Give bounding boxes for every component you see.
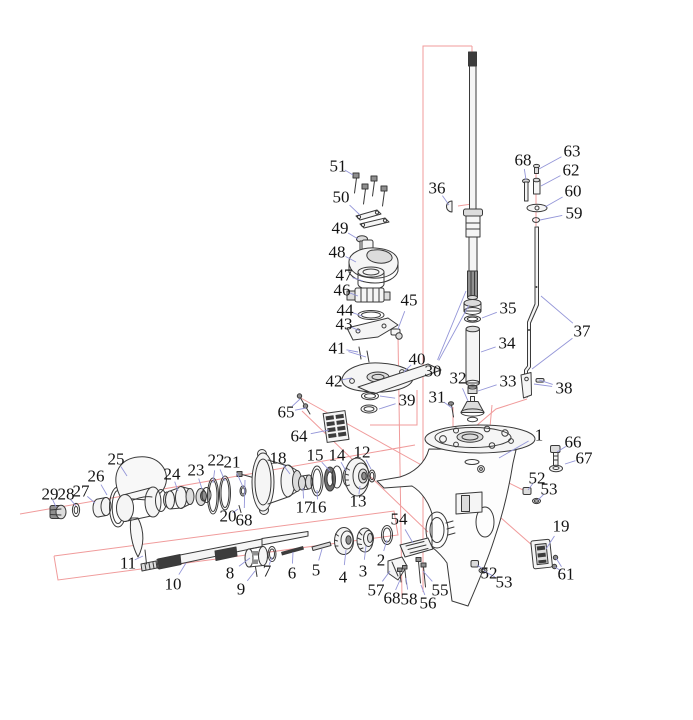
part-number-labels: 5150494847464443414245403936656468636260… [42, 142, 594, 613]
part-label-59: 59 [566, 204, 583, 223]
anode-screen-screws-drawing [297, 394, 310, 414]
leader-line-68 [244, 480, 245, 508]
leader-line-39 [380, 396, 395, 398]
part-label-60: 60 [565, 182, 582, 201]
part-label-43: 43 [336, 315, 353, 334]
part-label-34: 34 [499, 334, 517, 353]
part-label-13: 13 [350, 492, 367, 511]
leader-line-33 [478, 385, 497, 391]
leader-line-9 [247, 571, 255, 581]
prop-nut-drawing [50, 505, 66, 519]
part-label-57: 57 [368, 581, 386, 600]
red-reference-line [500, 517, 533, 546]
leader-line-44 [353, 313, 362, 316]
leader-line-6 [292, 552, 293, 564]
part-label-50: 50 [333, 188, 350, 207]
carrier-bearing-drawing [299, 475, 313, 490]
part-label-62: 62 [563, 161, 580, 180]
part-label-46: 46 [334, 281, 351, 300]
leader-line-26 [101, 485, 107, 495]
leader-line-39 [379, 404, 396, 409]
prop-shaft-drawing [141, 532, 308, 572]
leader-line-60 [545, 197, 563, 207]
leader-line-45 [398, 311, 405, 329]
leader-line-65 [295, 408, 306, 410]
part-label-67: 67 [576, 449, 594, 468]
part-label-49: 49 [332, 219, 349, 238]
shift-rod-drawing [525, 227, 539, 397]
cotter-pin-drawing [145, 550, 147, 564]
red-reference-line [490, 405, 492, 427]
leader-line-30 [438, 291, 466, 360]
shift-rod-hardware-drawing [523, 164, 548, 222]
part-label-23: 23 [188, 461, 205, 480]
prop-seal-drawing [325, 466, 343, 491]
leader-line-62 [541, 176, 560, 186]
leader-line-38 [534, 384, 552, 386]
leader-line-59 [540, 215, 562, 220]
part-label-53: 53 [541, 480, 558, 499]
diagram-canvas: 5150494847464443414245403936656468636260… [0, 0, 693, 720]
prop-spacer-drawing [93, 498, 111, 518]
pump-mount-bolts-drawing [353, 173, 387, 206]
part-label-51: 51 [330, 157, 347, 176]
part-label-18: 18 [270, 449, 287, 468]
drive-shaft-drawing [464, 52, 483, 300]
part-label-7: 7 [263, 562, 272, 581]
part-label-64: 64 [291, 427, 309, 446]
oring-12-drawing [369, 470, 375, 482]
part-label-11: 11 [120, 554, 136, 573]
part-label-1: 1 [535, 426, 544, 445]
leader-line-5 [319, 549, 322, 561]
part-label-36: 36 [429, 179, 446, 198]
part-label-40: 40 [409, 350, 426, 369]
part-label-29: 29 [42, 485, 59, 504]
exploded-diagram-svg: 5150494847464443414245403936656468636260… [0, 0, 693, 720]
part-label-39: 39 [399, 391, 416, 410]
thrust-hub-drawing [166, 487, 195, 510]
pump-fitting-drawing [391, 329, 402, 339]
leader-line-68 [524, 169, 526, 180]
part-label-28: 28 [58, 485, 75, 504]
leader-line-35 [482, 312, 497, 318]
part-label-42: 42 [326, 372, 343, 391]
leader-line-50 [350, 205, 360, 215]
part-label-27: 27 [73, 482, 91, 501]
part-label-38: 38 [556, 379, 573, 398]
leader-line-37 [532, 338, 572, 369]
part-label-63: 63 [564, 142, 581, 161]
part-label-9: 9 [237, 580, 246, 599]
part-label-56: 56 [420, 594, 437, 613]
leader-line-37 [541, 296, 573, 323]
part-label-25: 25 [108, 450, 125, 469]
part-label-35: 35 [500, 299, 517, 318]
part-label-54: 54 [391, 510, 409, 529]
part-label-68: 68 [236, 511, 253, 530]
part-label-30: 30 [425, 362, 442, 381]
shift-link-plates-drawing [356, 210, 389, 228]
forward-bearing-drawing [357, 528, 374, 552]
part-label-10: 10 [165, 575, 182, 594]
part-label-61: 61 [558, 565, 575, 584]
part-label-21: 21 [224, 453, 241, 472]
bolt-icon [353, 173, 387, 206]
leader-line-23 [199, 479, 202, 489]
part-label-24: 24 [164, 465, 182, 484]
leader-line-34 [481, 347, 496, 352]
reverse-gear-drawing [345, 458, 369, 496]
part-label-4: 4 [339, 568, 348, 587]
part-label-45: 45 [401, 291, 418, 310]
part-label-32: 32 [450, 369, 467, 388]
part-label-48: 48 [329, 243, 346, 262]
part-label-8: 8 [226, 564, 235, 583]
part-label-16: 16 [310, 498, 327, 517]
leader-line-41 [346, 350, 358, 352]
retainer-ring-drawing [268, 547, 276, 562]
dowel-pins-drawing [359, 347, 369, 362]
part-label-3: 3 [359, 562, 368, 581]
leader-line-54 [405, 529, 413, 543]
oil-seals-drawing [361, 392, 379, 413]
part-label-12: 12 [354, 443, 371, 462]
part-label-33: 33 [500, 372, 517, 391]
part-label-2: 2 [377, 551, 386, 570]
part-label-6: 6 [288, 564, 297, 583]
part-label-58: 58 [401, 590, 418, 609]
anode-screen-drawing [323, 411, 349, 443]
part-label-14: 14 [329, 446, 347, 465]
water-intake-plate-drawing [400, 538, 433, 557]
part-label-31: 31 [429, 388, 446, 407]
part-label-26: 26 [88, 467, 105, 486]
pump-oring-drawing [358, 311, 384, 320]
clutch-pin-drawing [256, 567, 258, 577]
part-label-5: 5 [312, 561, 321, 580]
part-label-19: 19 [553, 517, 570, 536]
part-label-37: 37 [574, 322, 592, 341]
forward-gear-drawing [335, 528, 354, 555]
part-label-41: 41 [329, 339, 346, 358]
leader-line-49 [348, 233, 358, 239]
part-label-22: 22 [208, 451, 225, 470]
leader-line-41 [348, 352, 366, 357]
part-label-68: 68 [515, 151, 532, 170]
part-label-53: 53 [496, 573, 513, 592]
part-label-68: 68 [384, 589, 401, 608]
leader-line-67 [565, 461, 575, 464]
part-label-65: 65 [278, 403, 295, 422]
part-label-20: 20 [220, 507, 237, 526]
leader-line-32 [463, 388, 469, 401]
driveshaft-sleeve-stack-drawing [448, 300, 484, 422]
leader-line-63 [539, 157, 561, 169]
part-label-15: 15 [307, 446, 324, 465]
leader-line-30 [439, 305, 469, 360]
